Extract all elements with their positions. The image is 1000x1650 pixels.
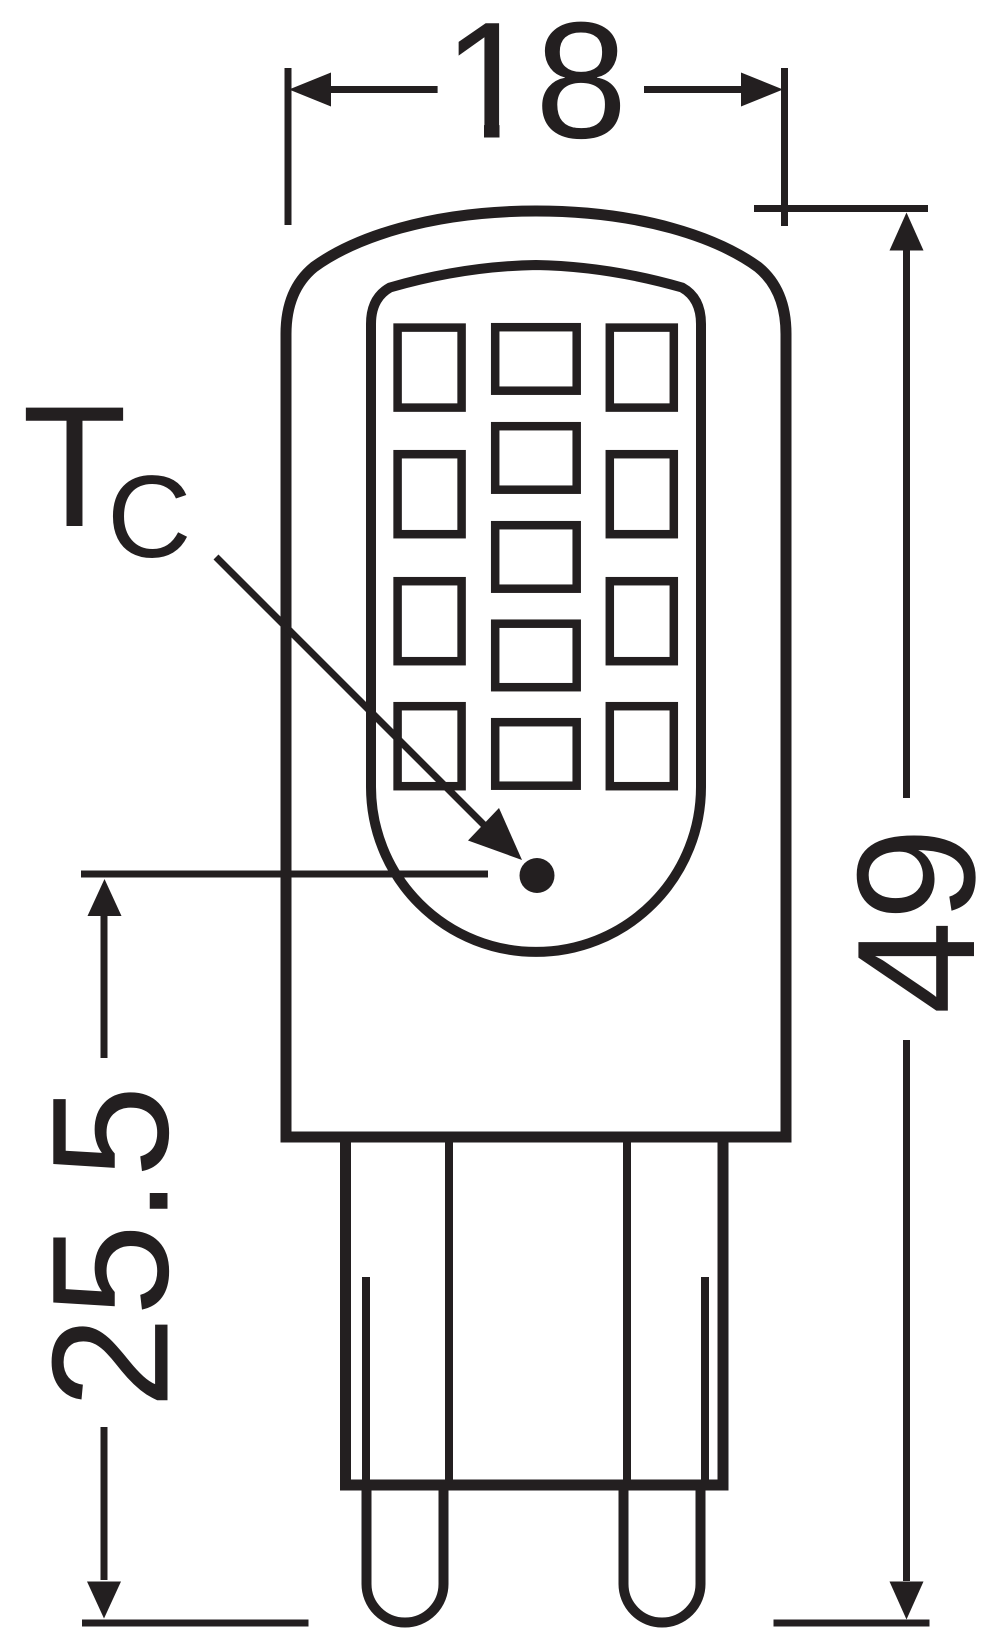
svg-text:18: 18: [443, 0, 628, 174]
svg-text:49: 49: [822, 828, 1000, 1015]
svg-text:C: C: [107, 451, 192, 582]
svg-text:25.5: 25.5: [19, 1085, 204, 1408]
